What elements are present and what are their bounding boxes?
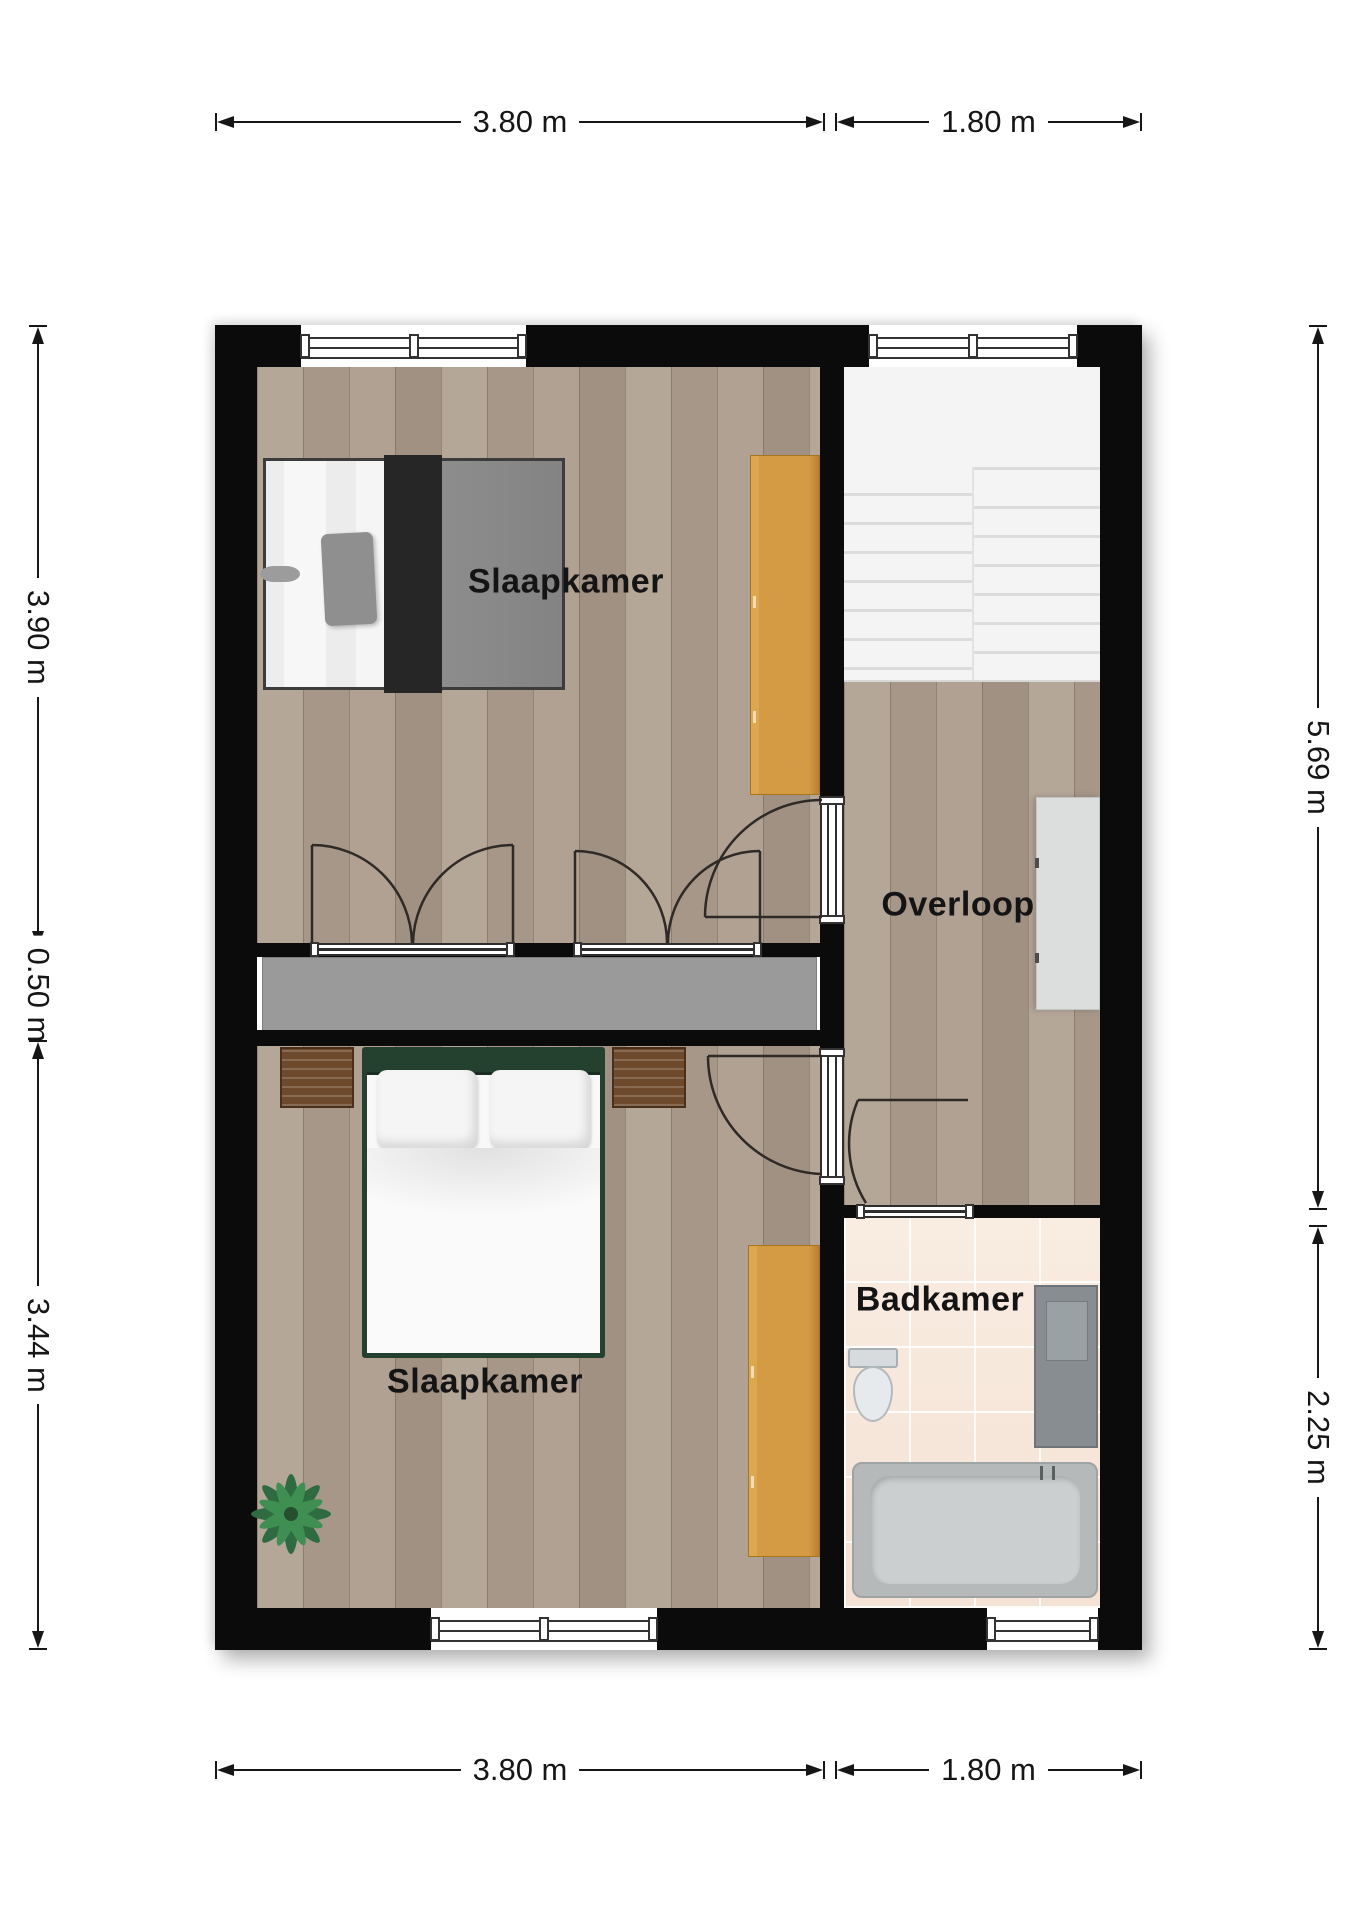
window-stairwell — [869, 325, 1077, 367]
wardrobe-handle — [753, 596, 756, 608]
dimension-label: 1.80 m — [929, 104, 1048, 140]
wardrobe-handle — [753, 711, 756, 723]
door-cap — [753, 942, 762, 957]
window-bedroom-bottom — [431, 1608, 657, 1650]
closet-opening-left — [312, 943, 513, 956]
cabinet-handle — [1035, 953, 1039, 963]
dimension-top-left: 3.80 m — [215, 104, 825, 140]
nightstand-right — [612, 1047, 686, 1108]
bathtub — [852, 1462, 1098, 1598]
window-cap — [986, 1617, 996, 1641]
bathtub-basin — [870, 1476, 1080, 1584]
bed-pillow — [490, 1070, 590, 1148]
stair-treads-right — [972, 467, 1100, 680]
dimension-right-2: 2.25 m — [1300, 1225, 1336, 1650]
floorplan-page: Slaapkamer Overloop Slaapkamer Badkamer … — [0, 0, 1358, 1920]
sink-basin — [1046, 1301, 1088, 1361]
stair-center-line — [972, 467, 974, 680]
door-opening-bathroom — [858, 1205, 972, 1218]
double-bed-bottom — [362, 1047, 605, 1358]
bed-duvet — [367, 1148, 600, 1353]
faucet-icon — [1052, 1466, 1055, 1480]
window-bathroom — [987, 1608, 1098, 1650]
door-opening-bedroom-top — [820, 798, 844, 922]
window-glazing — [987, 1620, 1098, 1642]
dimension-label: 5.69 m — [1300, 708, 1336, 827]
wall-closet-bottom — [257, 1030, 820, 1046]
door-cap — [819, 796, 845, 805]
window-cap — [1089, 1617, 1099, 1641]
bed-pillow — [377, 1070, 477, 1148]
window-bedroom-top — [301, 325, 526, 367]
wardrobe-top — [750, 455, 820, 795]
door-cap — [965, 1204, 974, 1219]
dimension-label: 2.25 m — [1300, 1378, 1336, 1497]
room-label-bedroom-bottom: Slaapkamer — [387, 1363, 583, 1402]
dimension-label: 3.90 m — [20, 578, 56, 697]
dimension-label: 1.80 m — [929, 1752, 1048, 1788]
window-cap — [430, 1617, 440, 1641]
landing-cabinet — [1036, 797, 1100, 1010]
window-cap — [968, 334, 978, 358]
door-cap — [819, 1048, 845, 1057]
door-cap — [819, 915, 845, 924]
window-cap — [868, 334, 878, 358]
cabinet-handle — [1035, 858, 1039, 868]
toilet-tank — [848, 1348, 898, 1368]
bathroom-sink-cabinet — [1034, 1285, 1098, 1448]
door-cap — [310, 942, 319, 957]
faucet-icon — [1040, 1466, 1043, 1480]
wardrobe-handle — [751, 1476, 754, 1488]
wardrobe-bottom — [748, 1245, 820, 1557]
dimension-label: 3.44 m — [20, 1286, 56, 1405]
window-cap — [300, 334, 310, 358]
window-cap — [648, 1617, 658, 1641]
dimension-bottom-right: 1.80 m — [835, 1752, 1142, 1788]
nightstand-left — [280, 1047, 354, 1108]
door-cap — [819, 1176, 845, 1185]
stair-treads-left — [844, 467, 972, 680]
dimension-left-3: 3.44 m — [20, 1040, 56, 1650]
wall-divider-vertical — [820, 367, 844, 1608]
window-cap — [409, 334, 419, 358]
window-cap — [1068, 334, 1078, 358]
dimension-left-1: 3.90 m — [20, 325, 56, 950]
window-cap — [539, 1617, 549, 1641]
wardrobe-handle — [751, 1366, 754, 1378]
room-label-bedroom-top: Slaapkamer — [468, 563, 664, 602]
dimension-left-2: 0.50 m — [20, 950, 56, 1040]
door-cap — [573, 942, 582, 957]
staircase — [844, 367, 1100, 682]
dimension-label: 3.80 m — [461, 104, 580, 140]
dimension-bottom-left: 3.80 m — [215, 1752, 825, 1788]
bed-pillow — [321, 532, 378, 627]
dimension-top-right: 1.80 m — [835, 104, 1142, 140]
bed-ribbon — [260, 566, 300, 582]
door-cap — [856, 1204, 865, 1219]
dimension-label: 0.50 m — [20, 936, 56, 1055]
wall-left — [215, 325, 257, 1650]
built-in-closet — [262, 957, 817, 1032]
room-label-landing: Overloop — [881, 886, 1034, 925]
dimension-label: 3.80 m — [461, 1752, 580, 1788]
room-label-bathroom: Badkamer — [856, 1281, 1024, 1320]
wall-right — [1100, 325, 1142, 1650]
dimension-right-1: 5.69 m — [1300, 325, 1336, 1210]
bed-blanket — [384, 455, 442, 693]
door-opening-bedroom-bottom — [820, 1050, 844, 1183]
closet-opening-right — [575, 943, 760, 956]
window-cap — [517, 334, 527, 358]
door-cap — [506, 942, 515, 957]
